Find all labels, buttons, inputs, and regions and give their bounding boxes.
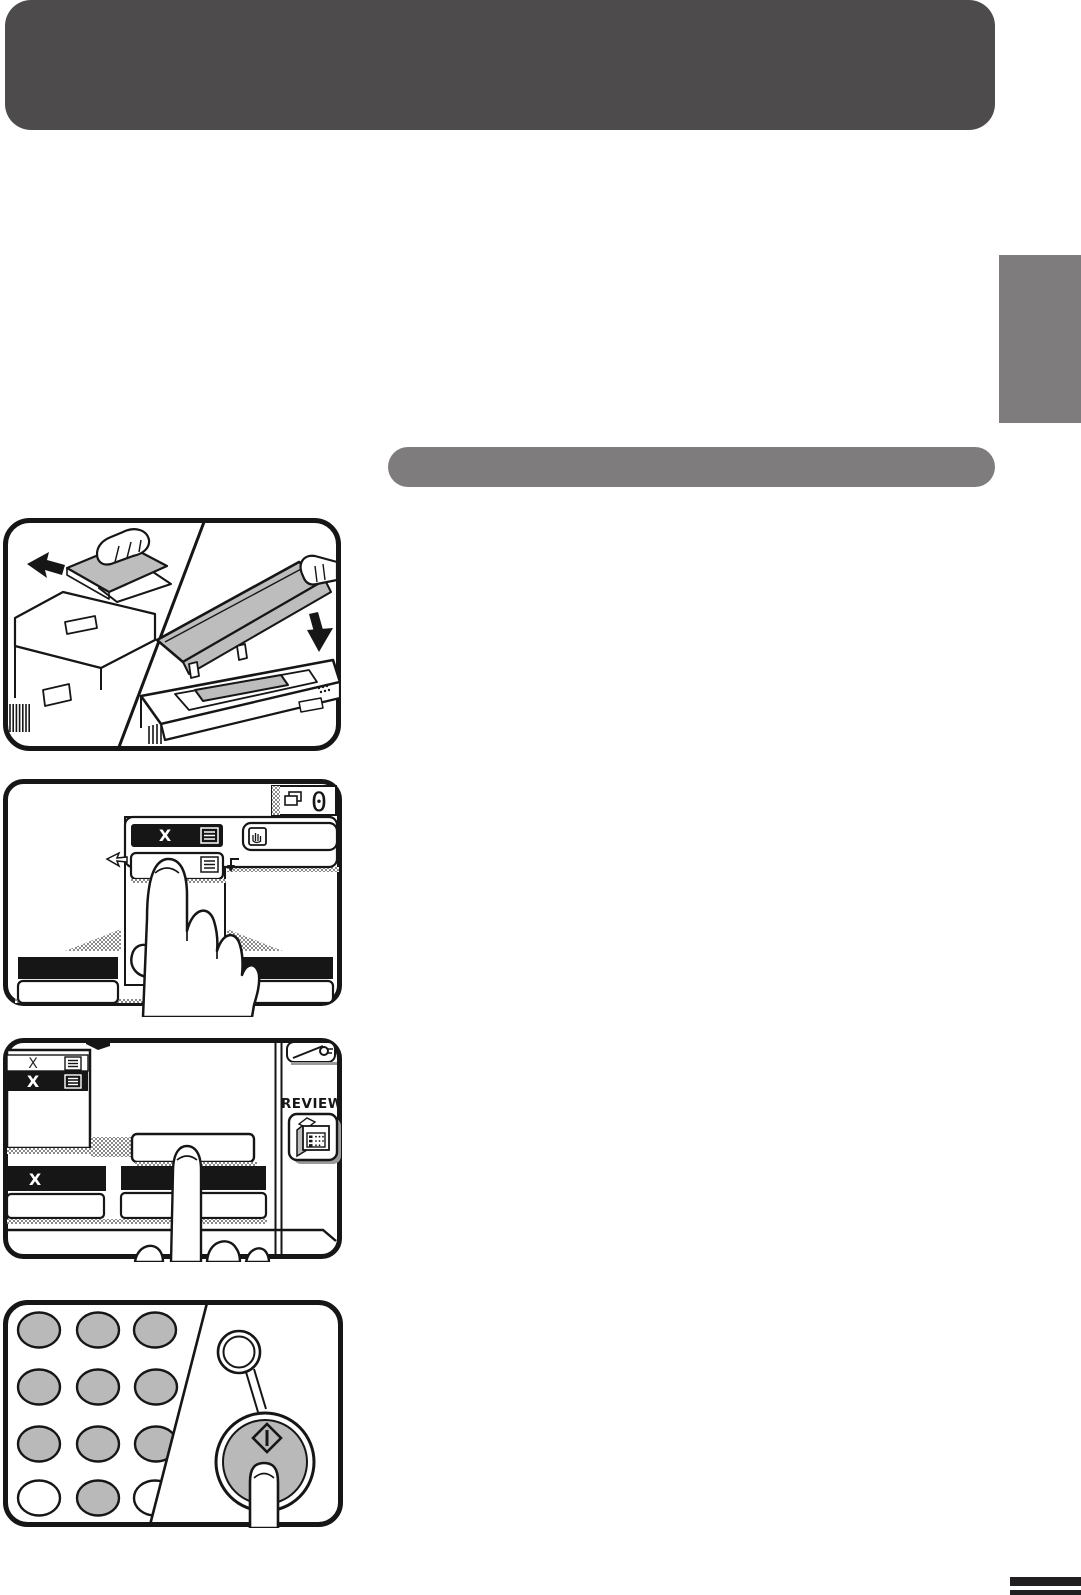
paper-size-bar-label: X: [29, 1170, 42, 1189]
hinge: [237, 644, 247, 660]
chapter-header-bar: [5, 0, 995, 130]
review-key: [289, 1114, 341, 1164]
chapter-side-tab: [999, 255, 1081, 423]
hinge: [189, 662, 199, 678]
vent-lines: [10, 704, 29, 732]
size-list: X X: [7, 1050, 93, 1154]
illustration-step4-start: [3, 1300, 343, 1528]
hand-holding-cover: [301, 556, 337, 585]
illustration-step2-touch-size: 0 X X: [3, 779, 342, 1017]
list-icon: [65, 1057, 81, 1070]
interrupt-key: [243, 823, 337, 850]
illustration-step1-load-originals: [3, 518, 341, 751]
copy-count-display: 0: [272, 786, 336, 818]
current-size-label: X: [159, 826, 172, 845]
size-list-option2: X: [27, 1072, 40, 1091]
list-icon: [201, 857, 218, 872]
pressing-finger: [250, 1463, 278, 1528]
footer-rule-bottom: [1010, 1590, 1081, 1595]
review-label: REVIEW: [281, 1096, 342, 1112]
section-title-bar: [388, 447, 995, 487]
size-list-option1: X: [28, 1056, 38, 1072]
key-counter-key: [287, 1042, 337, 1065]
footer-rule-top: [1010, 1577, 1081, 1586]
current-size-key: X: [131, 824, 223, 847]
copy-count-value: 0: [311, 787, 327, 818]
illustration-step3-review: X X REVIEW: [3, 1038, 342, 1262]
